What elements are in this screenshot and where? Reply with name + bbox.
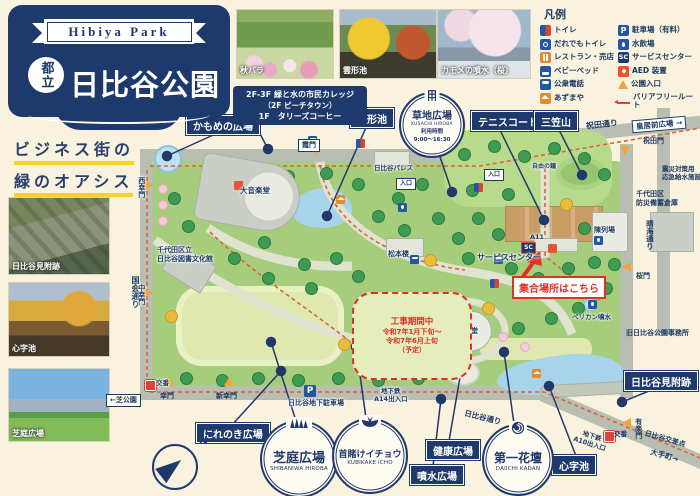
toilet-icon [490, 279, 499, 288]
photo-caption: 日比谷見附跡 [12, 261, 60, 272]
parking-icon: P [304, 385, 316, 397]
photo-caption: 芝庭広場 [12, 428, 44, 439]
poi-kyusui-line2: 応急給水施設 [662, 173, 700, 181]
label-funsui-hiroba: 噴水広場 [410, 465, 464, 485]
poi-bichiku-warehouse: 千代田区 防災備蓄倉庫 [636, 190, 678, 208]
badge-roman: KUBIKAKE ICHO [347, 460, 393, 466]
tagline-line2: 緑のオアシス [14, 168, 133, 197]
poi-koban: 交番 [614, 430, 627, 438]
poi-entrance: 入口 [396, 178, 416, 190]
parking-icon: P [618, 25, 629, 36]
badge-roman: DAIICHI KADAN [496, 466, 540, 472]
poi-bichiku-line1: 千代田区 [636, 190, 664, 198]
gate-kasumi: 霞門 [298, 139, 320, 152]
photo-shinji-pond: 心字池 [8, 282, 110, 357]
poi-liberty-bell: 自由の鐘 [532, 163, 556, 171]
park-title: 日比谷公園 [70, 62, 220, 104]
legend: 凡例 トイレ だれでもトイレ レストラン・売店 ベビーベッド 公衆電話 あずまや… [540, 6, 698, 109]
tagline-line1: ビジネス街の [14, 136, 134, 165]
aed-icon [618, 66, 629, 77]
gate-nishisaiwai: 西幸門 [137, 177, 146, 198]
gate-iwaidamon: 祝田門 [643, 137, 664, 146]
rose-icon [509, 421, 527, 435]
gate-shinsaiwai: 新幸門 [216, 392, 237, 401]
photo-caption: 心字池 [12, 343, 36, 354]
legend-column-right: P駐車場（有料） 水飲場 SCサービスセンター AED 装置 公園入口 バリアフ… [618, 25, 698, 109]
construction-line1: 工事期間中 [391, 317, 434, 328]
legend-title: 凡例 [544, 6, 698, 22]
ribbon-text: Hibiya Park [68, 24, 169, 40]
label-shinji-pond: 心字池 [552, 455, 596, 475]
ginkgo-leaf-icon [359, 415, 381, 428]
iwaida-gate-entrance-icon [620, 146, 630, 155]
label-hibiya-mitsuke: 日比谷見附跡 [624, 371, 698, 391]
badge-title: 草地広場 [412, 107, 452, 122]
badge-title: 芝庭広場 [273, 447, 325, 466]
service-center-icon: SC [618, 52, 629, 63]
legend-label: レストラン・売店 [554, 53, 614, 61]
park-entrance-icon [618, 80, 628, 89]
poi-hibiya-palace: 日比谷パレス [374, 164, 413, 172]
poi-koban: 交番 [156, 379, 169, 387]
label-kenko-hiroba: 健康広場 [426, 440, 480, 460]
baby-bed-icon [540, 66, 551, 77]
poi-entrance: 入口 [484, 169, 504, 181]
gazebo-icon [532, 369, 541, 378]
water-fountain-icon [594, 236, 603, 245]
badge-daiichi-kadan: 第一花壇 DAIICHI KADAN [482, 424, 554, 496]
legend-label: サービスセンター [632, 53, 692, 61]
poi-library-line2: 日比谷図書文化館 [157, 255, 213, 263]
sakura-gate-entrance-icon [622, 262, 631, 272]
gate-nakasaiwai: 中幸門 [137, 284, 146, 305]
road-south [140, 386, 560, 400]
legend-label: 公園入口 [631, 80, 661, 88]
poi-pelican-fountain: ペリカン噴水 [572, 313, 611, 321]
badge-hours-label: 利用時間 [421, 127, 443, 135]
toritsu-text: 都立 [37, 61, 56, 89]
photo-caption: カモメの噴水（桜） [441, 65, 513, 76]
construction-line4: （予定） [398, 346, 426, 355]
toilet-icon [356, 139, 365, 148]
public-phone-icon [540, 79, 551, 90]
badge-shibaniwa-hiroba: 芝庭広場 SHIBANIWA HIROBA [260, 420, 338, 496]
poi-emergency-water: 震災対策用 応急給水施設 [662, 165, 700, 181]
shinsaiwai-gate-entrance-icon [224, 377, 234, 386]
meeting-point-note: 集合場所はこちら [512, 276, 606, 299]
construction-line3: 令和7年6月上旬 [386, 337, 438, 346]
legend-label: ベビーベッド [554, 67, 599, 75]
water-fountain-icon [618, 39, 629, 50]
legend-label: あずまや [554, 94, 584, 102]
accessible-toilet-icon [540, 39, 551, 50]
tennis-courts [505, 206, 603, 242]
badge-roman: SHIBANIWA HIROBA [270, 466, 328, 472]
badge-title: 首賭けイチョウ [338, 447, 401, 460]
hibiya-park-map-poster: Hibiya Park 都立 日比谷公園 ビジネス街の 緑のオアシス 秋バラ 雲… [0, 0, 700, 496]
info-line1: 2F-3F 緑と水の市民カレッジ [237, 89, 363, 100]
toilet-icon [474, 183, 483, 192]
tagline: ビジネス街の 緑のオアシス [14, 136, 134, 200]
play-structure-icon [425, 89, 440, 101]
legend-label: バリアフリールート [633, 93, 698, 110]
street-harumi-dori: 晴海通り [645, 220, 654, 250]
poi-subway-a14: 地下鉄 A14出入口 [374, 387, 408, 403]
photo-kumogata-pond: 雲形池 [339, 9, 437, 79]
subway-label: 地下鉄 [381, 387, 401, 395]
bichiku-warehouse-building [650, 212, 694, 252]
photo-hibiya-mitsuke: 日比谷見附跡 [8, 197, 110, 275]
poi-daiongakudo: 大音楽堂 [240, 186, 270, 195]
badge-kusachi-hiroba: 草地広場 KUSACHI HIROBA 利用時間 9:00～16:30 [399, 92, 465, 158]
legend-label: AED 装置 [632, 67, 667, 75]
legend-column-left: トイレ だれでもトイレ レストラン・売店 ベビーベッド 公衆電話 あずまや [540, 25, 614, 109]
title-banner: Hibiya Park 都立 日比谷公園 [8, 5, 230, 117]
poi-old-park-office: 旧日比谷公園事務所 [626, 329, 689, 338]
badge-kubikake-icho: 首賭けイチョウ KUBIKAKE ICHO [332, 418, 408, 494]
poi-library: 千代田区立 日比谷図書文化館 [157, 246, 213, 264]
construction-line2: 令和7年1月下旬～ [383, 328, 442, 337]
photo-autumn-roses: 秋バラ [236, 9, 334, 79]
kamome-fountain [154, 145, 182, 173]
toritsu-circle: 都立 [28, 57, 64, 93]
poi-bichiku-line2: 防災備蓄倉庫 [636, 199, 678, 207]
water-fountain-icon [398, 203, 407, 212]
compass-arrow-icon [155, 453, 187, 483]
water-fountain-icon [588, 300, 597, 309]
poi-chinretsujo: 陳列場 [594, 226, 615, 235]
ribbon-tail-right-icon [192, 23, 206, 43]
photo-caption: 秋バラ [240, 65, 264, 76]
gate-saiwai: 幸門 [160, 392, 174, 401]
kumogata-pond [292, 188, 352, 228]
direction-shiba-park: ←芝公園 [106, 394, 141, 407]
grass-icon [286, 417, 312, 428]
gate-yurakumon: 有楽門 [634, 418, 643, 439]
poi-kyusui-line1: 震災対策用 [662, 165, 695, 173]
barrier-free-route-icon [618, 102, 630, 104]
koban-icon [145, 380, 156, 391]
legend-label: トイレ [554, 26, 577, 34]
poi-underground-parking: 日比谷地下駐車場 [288, 399, 344, 408]
label-mikasa-yama: 三笠山 [534, 111, 578, 131]
legend-label: 公衆電話 [554, 80, 584, 88]
toilet-icon [540, 25, 551, 36]
photo-caption: 雲形池 [343, 65, 367, 76]
college-info-box: 2F-3F 緑と水の市民カレッジ （2F ピーチタウン） 1F タリーズコーヒー [233, 86, 367, 125]
gazebo-icon [540, 93, 551, 104]
info-line3: 1F タリーズコーヒー [237, 111, 363, 122]
public-phone-icon [410, 255, 419, 264]
restaurant-icon [540, 52, 551, 63]
gazebo-icon [336, 195, 345, 204]
info-line2: （2F ピーチタウン） [237, 100, 363, 111]
direction-kokyo: 皇居前広場 → [632, 116, 687, 134]
compass: N [152, 444, 198, 490]
poi-matsumotoro: 松本楼 [388, 250, 409, 259]
construction-zone: 工事期間中 令和7年1月下旬～ 令和7年6月上旬 （予定） [352, 292, 472, 380]
banner-curve-icon [28, 106, 210, 124]
mikasa-hill [556, 157, 606, 190]
compass-north-label: N [199, 434, 208, 447]
poi-a11: A11 [530, 233, 544, 241]
poi-library-line1: 千代田区立 [157, 246, 192, 254]
street-hibiya-dori: 日比谷通り [463, 409, 502, 427]
badge-title: 第一花壇 [494, 449, 542, 466]
aed-icon [548, 244, 557, 253]
photo-kamome-fountain-sakura: カモメの噴水（桜） [437, 9, 531, 79]
badge-hours: 9:00～16:30 [414, 135, 451, 143]
gate-sakuramon: 桜門 [636, 272, 650, 281]
shibaniwa-lawn [176, 286, 344, 366]
poi-service-center: サービスセンター [477, 253, 541, 263]
legend-label: だれでもトイレ [554, 40, 606, 48]
yuraku-gate-entrance-icon [622, 418, 631, 428]
legend-label: 駐車場（有料） [632, 26, 685, 34]
a14-label: A14出入口 [374, 395, 408, 403]
ribbon: Hibiya Park [44, 19, 194, 44]
legend-label: 水飲場 [632, 40, 655, 48]
photo-shibaniwa-hiroba: 芝庭広場 [8, 368, 110, 442]
